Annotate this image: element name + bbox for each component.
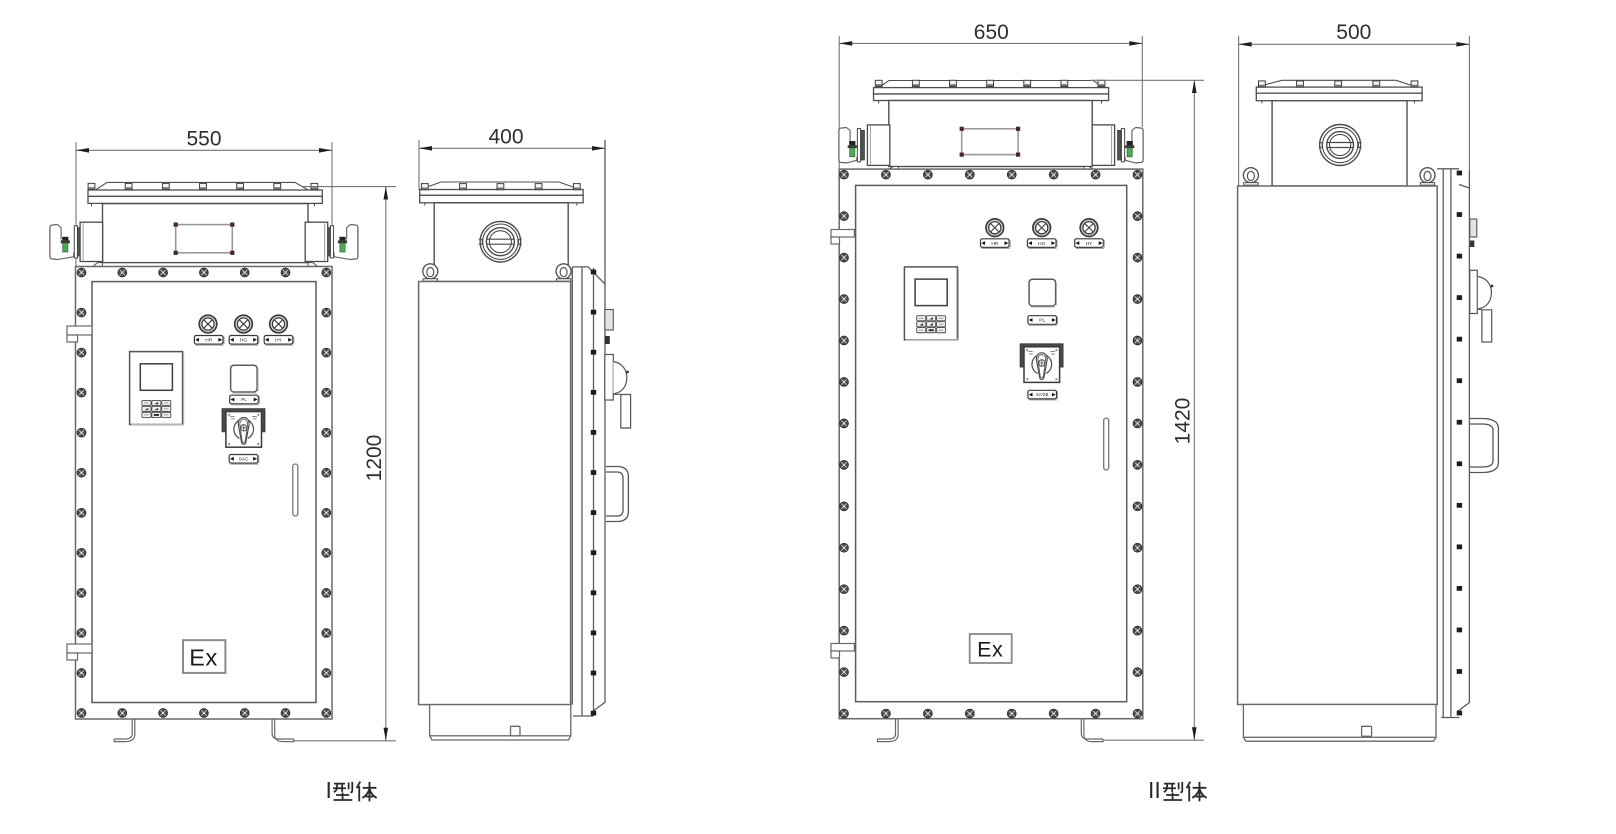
- svg-text:HG: HG: [1038, 241, 1045, 247]
- svg-text:HY: HY: [275, 338, 282, 344]
- svg-text:SAC: SAC: [239, 457, 249, 463]
- svg-text:SA/SB: SA/SB: [1036, 392, 1049, 397]
- svg-text:1420: 1420: [1172, 398, 1195, 445]
- svg-text:HR: HR: [991, 241, 998, 247]
- svg-text:HR: HR: [205, 338, 212, 344]
- svg-text:Ex: Ex: [189, 644, 217, 670]
- svg-text:1200: 1200: [363, 435, 386, 482]
- svg-text:550: 550: [186, 128, 221, 151]
- svg-text:HY: HY: [1086, 241, 1093, 247]
- svg-text:650: 650: [974, 21, 1009, 44]
- svg-text:PL: PL: [1039, 318, 1045, 324]
- svg-text:I: I: [326, 777, 332, 803]
- svg-text:400: 400: [488, 126, 523, 149]
- svg-text:HG: HG: [240, 338, 247, 344]
- svg-text:PL: PL: [241, 397, 247, 403]
- svg-text:Ex: Ex: [977, 637, 1003, 661]
- svg-text:II: II: [1148, 777, 1161, 803]
- svg-text:500: 500: [1336, 21, 1371, 44]
